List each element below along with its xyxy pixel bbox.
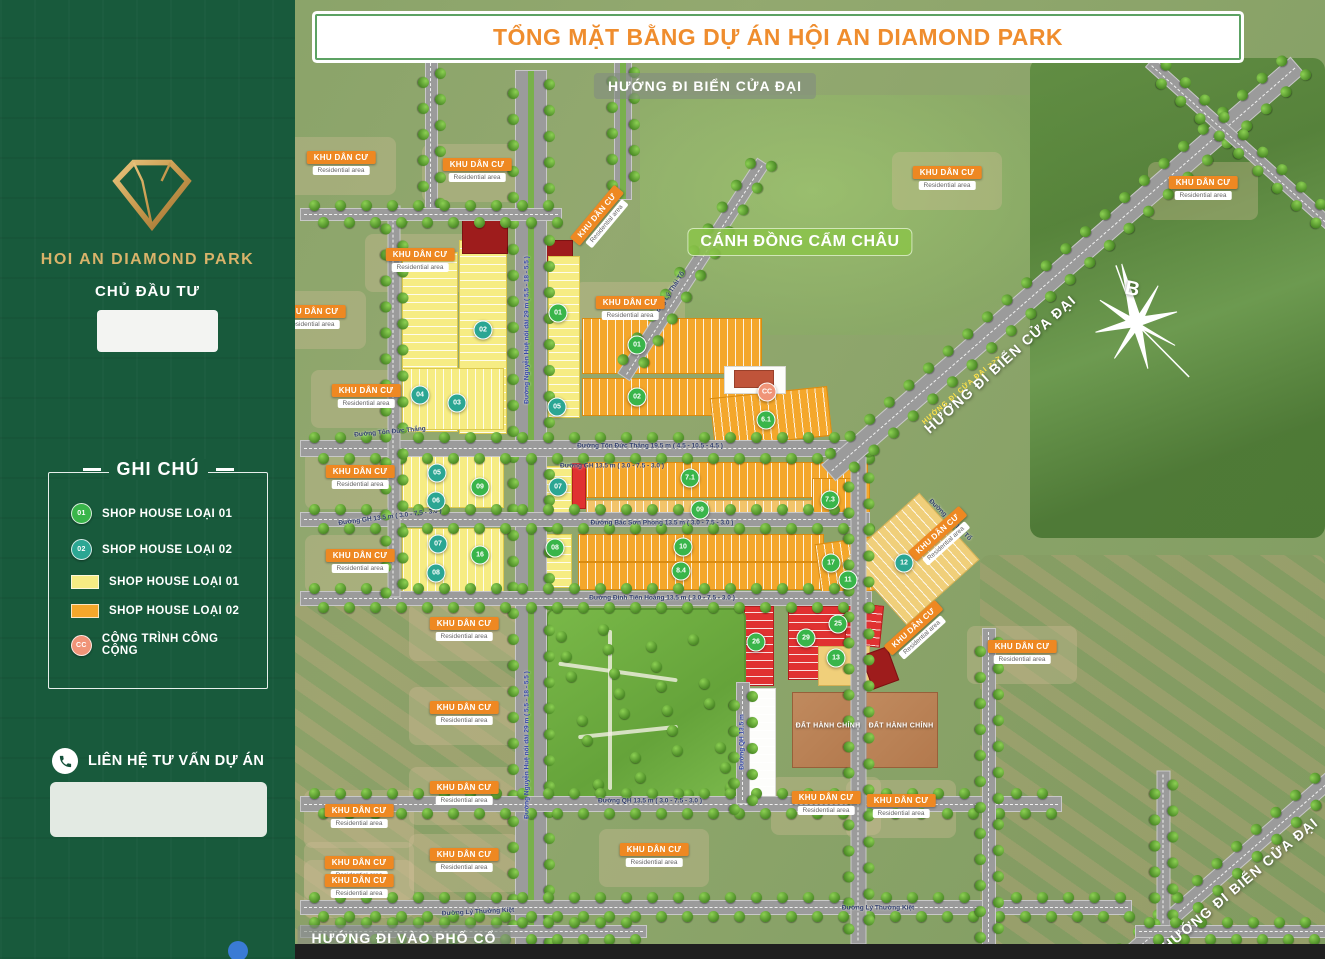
- tree-icon: [344, 453, 355, 464]
- tree-icon: [975, 646, 986, 657]
- area-label-subtitle: Residential area: [1175, 191, 1232, 200]
- legend-item: CCCÔNG TRÌNH CÔNG CỘNG: [71, 633, 257, 657]
- tree-icon: [863, 525, 874, 536]
- tree-icon: [725, 504, 736, 515]
- tree-icon: [439, 432, 450, 443]
- tree-icon: [803, 432, 814, 443]
- tree-icon: [508, 712, 519, 723]
- tree-icon: [656, 602, 667, 613]
- tree-icon: [309, 504, 320, 515]
- area-label: KHU DÂN CƯResidential area: [430, 617, 499, 641]
- tree-icon: [704, 698, 715, 709]
- tree-icon: [526, 453, 537, 464]
- tree-icon: [886, 425, 902, 441]
- tree-icon: [647, 583, 658, 594]
- tree-icon: [621, 504, 632, 515]
- tree-icon: [508, 88, 519, 99]
- lot-badge-01: 01: [549, 304, 568, 323]
- legend-swatch: 01: [71, 503, 92, 524]
- area-label: KHU DÂN CƯResidential area: [867, 794, 936, 818]
- area-label-subtitle: Residential area: [392, 263, 449, 272]
- tree-icon: [725, 788, 736, 799]
- lot-badge-12: 12: [895, 554, 914, 573]
- tree-icon: [604, 808, 615, 819]
- tree-icon: [543, 583, 554, 594]
- bottom-dark-strip: [295, 944, 1325, 959]
- terrain-patch: [980, 555, 1325, 945]
- tree-icon: [975, 776, 986, 787]
- tree-icon: [1283, 934, 1294, 945]
- tree-icon: [942, 911, 953, 922]
- tree-icon: [435, 120, 446, 131]
- tree-icon: [387, 788, 398, 799]
- tree-icon: [500, 217, 511, 228]
- area-label: KHU DÂN CƯResidential area: [570, 185, 632, 253]
- tree-icon: [656, 911, 667, 922]
- area-label: KHU DÂN CƯResidential area: [430, 848, 499, 872]
- tree-icon: [1020, 808, 1031, 819]
- tree-icon: [975, 854, 986, 865]
- area-label-title: KHU DÂN CƯ: [430, 781, 499, 794]
- tree-icon: [993, 715, 1004, 726]
- tree-icon: [413, 892, 424, 903]
- tree-icon: [318, 217, 329, 228]
- tree-icon: [309, 892, 320, 903]
- area-label-title: KHU DÂN CƯ: [1169, 176, 1238, 189]
- tree-icon: [647, 892, 658, 903]
- tree-icon: [508, 842, 519, 853]
- tree-icon: [699, 432, 710, 443]
- area-label: KHU DÂN CƯResidential area: [386, 248, 455, 272]
- tree-icon: [500, 523, 511, 534]
- tree-icon: [863, 733, 874, 744]
- tree-icon: [465, 892, 476, 903]
- investor-logo-box: [97, 310, 218, 352]
- tree-icon: [964, 357, 980, 373]
- tree-icon: [760, 808, 771, 819]
- lot-badge-26: 26: [747, 633, 766, 652]
- tree-icon: [517, 583, 528, 594]
- legend-label: SHOP HOUSE LOẠI 02: [109, 605, 239, 617]
- tree-icon: [508, 270, 519, 281]
- tree-icon: [398, 552, 409, 563]
- tree-icon: [890, 911, 901, 922]
- area-label-subtitle: Residential area: [313, 166, 370, 175]
- tree-icon: [474, 453, 485, 464]
- tree-icon: [381, 353, 392, 364]
- tree-icon: [361, 788, 372, 799]
- area-label-title: KHU DÂN CƯ: [325, 804, 394, 817]
- area-label: KHU DÂN CƯResidential area: [792, 791, 861, 815]
- tree-icon: [448, 523, 459, 534]
- tree-icon: [621, 432, 632, 443]
- area-label: KHU DÂN CƯResidential area: [307, 151, 376, 175]
- tree-icon: [508, 348, 519, 359]
- tree-icon: [569, 892, 580, 903]
- tree-icon: [672, 745, 683, 756]
- tree-icon: [725, 583, 736, 594]
- tree-icon: [1257, 934, 1268, 945]
- lot-block: [578, 534, 824, 562]
- central-park: [546, 608, 746, 808]
- tree-icon: [975, 880, 986, 891]
- area-label: KHU DÂN CƯResidential area: [913, 166, 982, 190]
- tree-icon: [682, 911, 693, 922]
- admin-land-label: ĐẤT HÀNH CHÍNH: [869, 723, 934, 730]
- lot-block: [572, 463, 586, 509]
- tree-icon: [725, 892, 736, 903]
- tree-icon: [993, 663, 1004, 674]
- tree-icon: [975, 906, 986, 917]
- tree-icon: [975, 750, 986, 761]
- area-label-title: KHU DÂN CƯ: [913, 166, 982, 179]
- tree-icon: [708, 808, 719, 819]
- tree-icon: [604, 934, 615, 945]
- tree-icon: [578, 523, 589, 534]
- area-label-title: KHU DÂN CƯ: [867, 794, 936, 807]
- tree-icon: [552, 602, 563, 613]
- lot-badge-07: 07: [429, 535, 448, 554]
- lot-block: [866, 692, 938, 768]
- tree-icon: [940, 343, 956, 359]
- tree-icon: [474, 808, 485, 819]
- tree-icon: [843, 924, 854, 935]
- tree-icon: [1011, 788, 1022, 799]
- tree-icon: [309, 583, 320, 594]
- tree-icon: [508, 140, 519, 151]
- area-label-subtitle: Residential area: [626, 858, 683, 867]
- tree-icon: [603, 644, 614, 655]
- area-label-title: KHU DÂN CƯ: [430, 848, 499, 861]
- area-label-subtitle: Residential area: [873, 809, 930, 818]
- tree-icon: [381, 301, 392, 312]
- area-label-title: KHU DÂN CƯ: [430, 701, 499, 714]
- tree-icon: [556, 631, 567, 642]
- tree-icon: [398, 526, 409, 537]
- tree-icon: [993, 793, 1004, 804]
- tree-icon: [1300, 917, 1311, 928]
- tree-icon: [843, 872, 854, 883]
- tree-icon: [318, 453, 329, 464]
- area-label: KHU DÂN CƯResidential area: [430, 701, 499, 725]
- tree-icon: [422, 453, 433, 464]
- tree-icon: [422, 808, 433, 819]
- tree-icon: [578, 934, 589, 945]
- tree-icon: [370, 523, 381, 534]
- tree-icon: [439, 892, 450, 903]
- tree-icon: [508, 400, 519, 411]
- tree-icon: [1167, 806, 1178, 817]
- tree-icon: [552, 808, 563, 819]
- tree-icon: [786, 911, 797, 922]
- tree-icon: [448, 808, 459, 819]
- tree-icon: [630, 752, 641, 763]
- tree-icon: [418, 155, 429, 166]
- tree-icon: [361, 504, 372, 515]
- tree-icon: [508, 634, 519, 645]
- tree-icon: [413, 200, 424, 211]
- area-label-title: KHU DÂN CƯ: [326, 549, 395, 562]
- tree-icon: [598, 624, 609, 635]
- tree-icon: [607, 102, 618, 113]
- tree-icon: [398, 578, 409, 589]
- tree-icon: [569, 504, 580, 515]
- tree-icon: [812, 453, 823, 464]
- lot-badge-25: 25: [829, 615, 848, 634]
- tree-icon: [667, 725, 678, 736]
- road-centerline: [304, 907, 1128, 908]
- area-label: KHU DÂN CƯResidential area: [325, 874, 394, 898]
- tree-icon: [863, 551, 874, 562]
- legend-label: SHOP HOUSE LOẠI 02: [102, 544, 232, 556]
- road-centerline: [430, 63, 431, 212]
- tree-icon: [843, 508, 854, 519]
- lot-badge-07: 07: [549, 478, 568, 497]
- tree-icon: [619, 708, 630, 719]
- tree-icon: [863, 577, 874, 588]
- tree-icon: [543, 917, 554, 928]
- tree-icon: [508, 738, 519, 749]
- tree-icon: [577, 715, 588, 726]
- area-label: KHU DÂN CƯResidential area: [1169, 176, 1238, 200]
- tree-icon: [387, 200, 398, 211]
- tree-icon: [413, 583, 424, 594]
- lot-badge-6.1: 6.1: [757, 411, 776, 430]
- road-centerline: [1162, 775, 1163, 944]
- tree-icon: [843, 820, 854, 831]
- tree-icon: [803, 504, 814, 515]
- tree-icon: [629, 119, 640, 130]
- tree-icon: [561, 651, 572, 662]
- tree-icon: [418, 103, 429, 114]
- tree-icon: [508, 322, 519, 333]
- tree-icon: [418, 77, 429, 88]
- area-label-subtitle: Residential area: [919, 181, 976, 190]
- area-label-title: KHU DÂN CƯ: [596, 296, 665, 309]
- tree-icon: [729, 700, 740, 711]
- tree-icon: [569, 788, 580, 799]
- tree-icon: [647, 432, 658, 443]
- tree-icon: [595, 432, 606, 443]
- tree-icon: [526, 217, 537, 228]
- tree-icon: [993, 741, 1004, 752]
- tree-icon: [396, 217, 407, 228]
- tree-icon: [544, 339, 555, 350]
- tree-icon: [647, 504, 658, 515]
- tree-icon: [544, 833, 555, 844]
- legend-item: 01SHOP HOUSE LOẠI 01: [71, 503, 257, 524]
- area-label-subtitle: Residential area: [332, 480, 389, 489]
- tree-icon: [838, 911, 849, 922]
- lot-badge-09: 09: [471, 478, 490, 497]
- area-label-title: KHU DÂN CƯ: [988, 640, 1057, 653]
- tree-icon: [517, 892, 528, 903]
- tree-icon: [544, 235, 555, 246]
- tree-icon: [777, 788, 788, 799]
- tree-icon: [474, 602, 485, 613]
- tree-icon: [812, 523, 823, 534]
- phone-icon: [52, 748, 78, 774]
- legend-item: 02SHOP HOUSE LOẠI 02: [71, 539, 257, 560]
- contact-heading: LIÊN HỆ TƯ VẤN DỰ ÁN: [88, 753, 264, 769]
- lot-badge-7.1: 7.1: [681, 469, 700, 488]
- area-label: KHU DÂN CƯResidential area: [326, 549, 395, 573]
- tree-icon: [335, 583, 346, 594]
- area-label-subtitle: Residential area: [602, 311, 659, 320]
- area-label: KHU DÂN CƯResidential area: [988, 640, 1057, 664]
- road-centerline: [1139, 931, 1323, 932]
- tree-icon: [688, 634, 699, 645]
- tree-icon: [569, 583, 580, 594]
- tree-icon: [635, 772, 646, 783]
- street-label: Đường QH 13.5 m: [739, 714, 746, 770]
- tree-icon: [629, 171, 640, 182]
- road-centerline: [988, 632, 989, 942]
- tree-icon: [381, 327, 392, 338]
- tree-icon: [398, 370, 409, 381]
- tree-icon: [595, 892, 606, 903]
- street-label: Đường Tôn Đức Thắng 19.5 m ( 4.5 - 10.5 …: [577, 443, 723, 450]
- tree-icon: [1274, 917, 1285, 928]
- tree-icon: [682, 602, 693, 613]
- area-label-subtitle: Residential area: [436, 716, 493, 725]
- tree-icon: [863, 915, 874, 926]
- tree-icon: [729, 804, 740, 815]
- lot-badge-08: 08: [427, 564, 446, 583]
- tree-icon: [959, 788, 970, 799]
- legend: GHI CHÚ 01SHOP HOUSE LOẠI 0102SHOP HOUSE…: [48, 472, 268, 689]
- page-title: TỔNG MẶT BẰNG DỰ ÁN HỘI AN DIAMOND PARK: [493, 24, 1063, 51]
- tree-icon: [734, 523, 745, 534]
- road: [425, 59, 438, 216]
- tree-icon: [398, 318, 409, 329]
- tree-icon: [881, 892, 892, 903]
- legend-label: CÔNG TRÌNH CÔNG CỘNG: [102, 633, 257, 657]
- tree-icon: [1149, 841, 1160, 852]
- tree-icon: [862, 411, 878, 427]
- direction-label: CÁNH ĐỒNG CẨM CHÂU: [687, 228, 912, 256]
- tree-icon: [344, 217, 355, 228]
- tree-icon: [491, 892, 502, 903]
- tree-icon: [526, 934, 537, 945]
- area-label-title: KHU DÂN CƯ: [430, 617, 499, 630]
- tree-icon: [381, 223, 392, 234]
- tree-icon: [543, 200, 554, 211]
- tree-icon: [729, 778, 740, 789]
- tree-icon: [751, 583, 762, 594]
- tree-icon: [474, 523, 485, 534]
- tree-icon: [777, 583, 788, 594]
- tree-icon: [517, 432, 528, 443]
- tree-icon: [491, 583, 502, 594]
- lot-badge-03: 03: [448, 394, 467, 413]
- tree-icon: [309, 432, 320, 443]
- tree-icon: [993, 923, 1004, 934]
- tree-icon: [508, 478, 519, 489]
- tree-icon: [500, 602, 511, 613]
- area-label: KHU DÂN CƯResidential area: [325, 804, 394, 828]
- tree-icon: [422, 602, 433, 613]
- tree-icon: [578, 911, 589, 922]
- lot-badge-7.3: 7.3: [821, 491, 840, 510]
- tree-icon: [595, 504, 606, 515]
- direction-label: HƯỚNG ĐI BIỂN CỬA ĐẠI: [594, 73, 816, 99]
- tree-icon: [517, 200, 528, 211]
- tree-icon: [863, 863, 874, 874]
- area-label-title: KHU DÂN CƯ: [792, 791, 861, 804]
- tree-icon: [1222, 917, 1233, 928]
- road-centerline: [304, 214, 558, 215]
- tree-icon: [1046, 808, 1057, 819]
- tree-icon: [422, 911, 433, 922]
- tree-icon: [435, 146, 446, 157]
- tree-icon: [474, 217, 485, 228]
- tree-icon: [881, 394, 897, 410]
- road: [300, 900, 1132, 915]
- road: [982, 628, 996, 946]
- tree-icon: [630, 808, 641, 819]
- tree-icon: [720, 762, 731, 773]
- area-label-title: KHU DÂN CƯ: [307, 151, 376, 164]
- tree-icon: [465, 432, 476, 443]
- tree-icon: [448, 602, 459, 613]
- area-label: KHU DÂN CƯResidential area: [332, 384, 401, 408]
- tree-icon: [526, 523, 537, 534]
- tree-icon: [656, 808, 667, 819]
- lot-badge-10: 10: [674, 538, 693, 557]
- area-label-title: KHU DÂN CƯ: [325, 874, 394, 887]
- tree-icon: [526, 911, 537, 922]
- lot-badge-01: 01: [628, 336, 647, 355]
- tree-icon: [777, 432, 788, 443]
- tree-icon: [812, 602, 823, 613]
- tree-icon: [760, 453, 771, 464]
- tree-icon: [715, 742, 726, 753]
- road-centerline: [304, 598, 868, 599]
- tree-icon: [335, 788, 346, 799]
- legend-heading: GHI CHÚ: [49, 459, 267, 480]
- tree-icon: [1167, 832, 1178, 843]
- tree-icon: [543, 432, 554, 443]
- tree-icon: [508, 530, 519, 541]
- tree-icon: [1124, 911, 1135, 922]
- tree-icon: [544, 677, 555, 688]
- tree-icon: [544, 183, 555, 194]
- tree-icon: [843, 482, 854, 493]
- tree-icon: [843, 846, 854, 857]
- tree-icon: [318, 523, 329, 534]
- tree-icon: [646, 641, 657, 652]
- street-label: Đường QH 13.5 m ( 3.0 - 7.5 - 3.0 ): [598, 798, 702, 805]
- tree-icon: [863, 707, 874, 718]
- lot-badge-29: 29: [797, 629, 816, 648]
- tree-icon: [760, 602, 771, 613]
- tree-icon: [843, 742, 854, 753]
- tree-icon: [1115, 892, 1126, 903]
- lot-badge-05: 05: [548, 398, 567, 417]
- tree-icon: [843, 690, 854, 701]
- tree-icon: [975, 802, 986, 813]
- tree-icon: [544, 755, 555, 766]
- street-label: Đường GH 13.5 m ( 3.0 - 7.5 - 3.0 ): [560, 463, 664, 470]
- tree-icon: [708, 911, 719, 922]
- tree-icon: [933, 892, 944, 903]
- contact-heading-row: LIÊN HỆ TƯ VẤN DỰ ÁN: [52, 748, 264, 774]
- tree-icon: [843, 534, 854, 545]
- tree-icon: [747, 717, 758, 728]
- legend-swatch: 02: [71, 539, 92, 560]
- tree-icon: [662, 705, 673, 716]
